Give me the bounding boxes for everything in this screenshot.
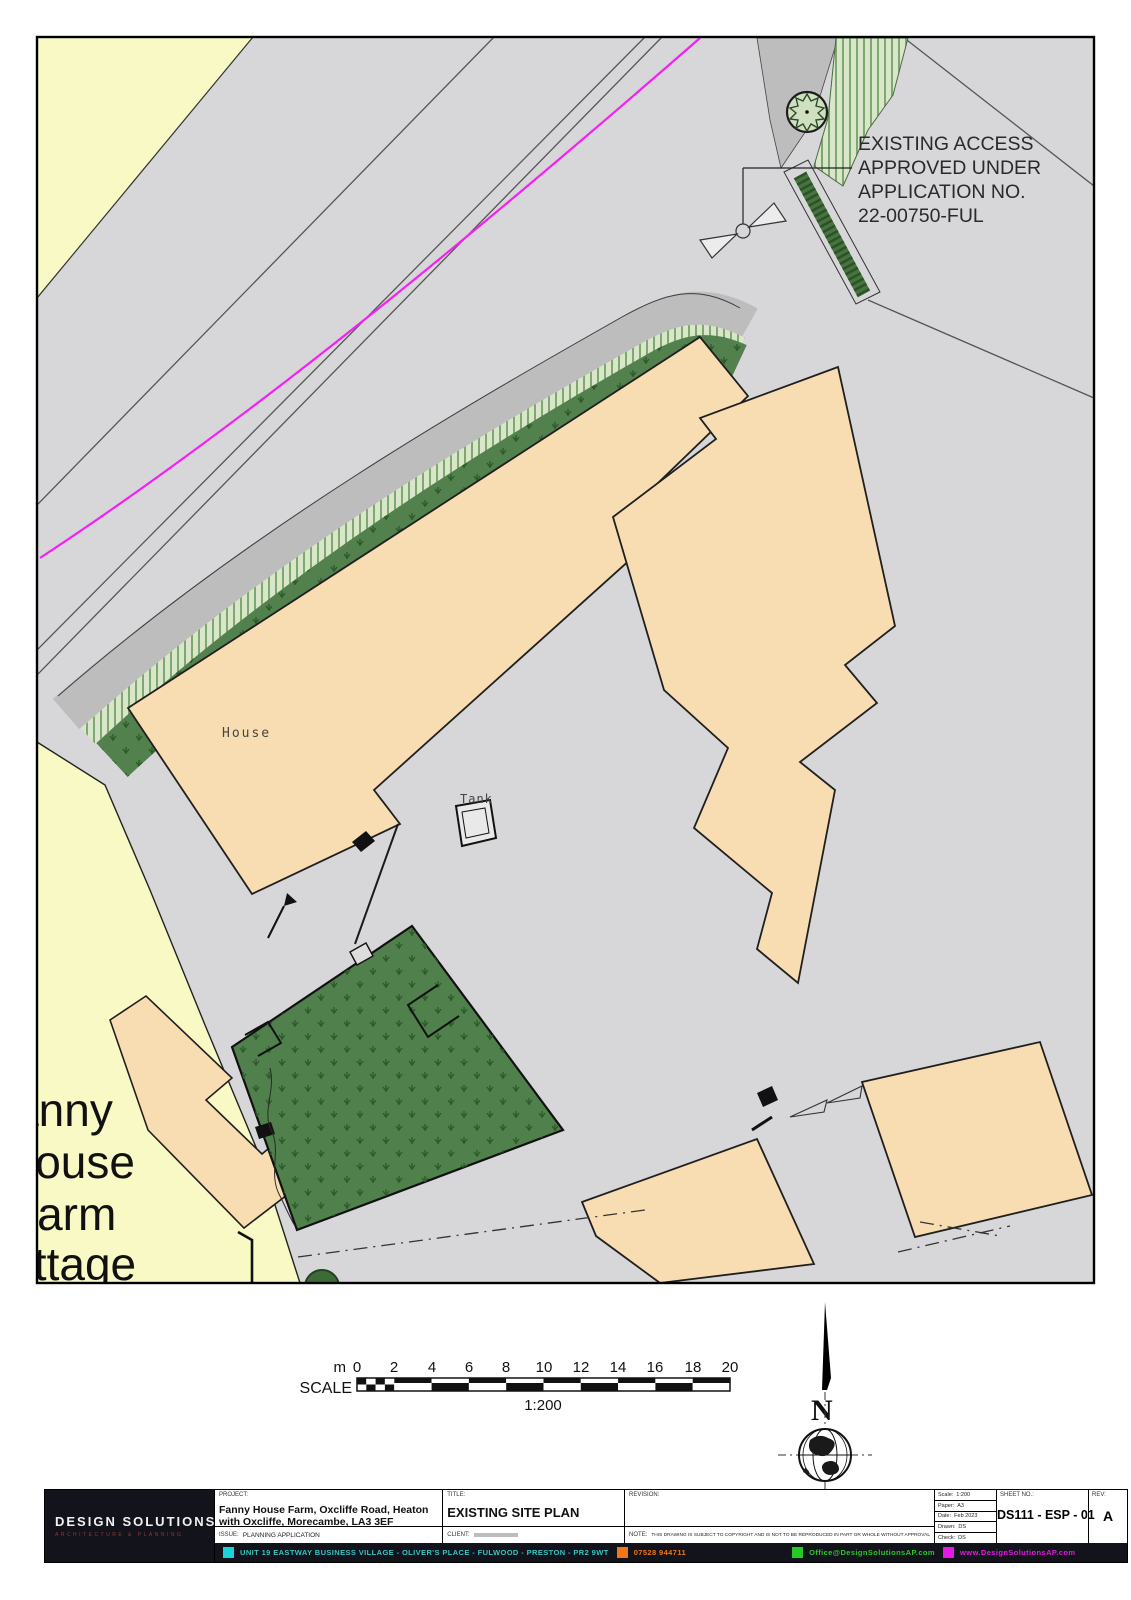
cottage-label-line3: Farm	[9, 1188, 116, 1240]
revision-label: REVISION:	[629, 1492, 930, 1498]
scale-field-label: Scale:	[938, 1492, 953, 1498]
rev-value: A	[1089, 1508, 1127, 1524]
scale-tick-10: 10	[536, 1359, 553, 1376]
tank-label: Tank	[460, 792, 493, 806]
page: EXISTING ACCESS APPROVED UNDER APPLICATI…	[0, 0, 1131, 1600]
house-label: House	[222, 726, 271, 741]
north-arrow-icon: N	[778, 1302, 872, 1494]
north-letter: N	[811, 1394, 833, 1427]
scale-tick-16: 16	[647, 1359, 664, 1376]
note-label: NOTE:	[629, 1532, 647, 1538]
sheet-value: DS111 - ESP - 01	[997, 1508, 1088, 1522]
scale-tick-2: 2	[390, 1359, 398, 1376]
paper-field-label: Paper:	[938, 1503, 954, 1509]
bottom-tree-icon	[305, 1270, 339, 1304]
check-field-value: DS	[958, 1535, 966, 1541]
email-text: Office@DesignSolutionsAP.com	[809, 1548, 935, 1557]
check-field-label: Check:	[938, 1535, 955, 1541]
scale-tick-0: 0	[353, 1359, 361, 1376]
scale-tick-12: 12	[573, 1359, 590, 1376]
magenta-square-icon	[943, 1547, 954, 1558]
rev-label: REV:	[1089, 1490, 1127, 1500]
tree-trunk-dot	[805, 110, 809, 114]
sheet-label: SHEET NO.:	[997, 1490, 1088, 1500]
scale-tick-20: 20	[722, 1359, 739, 1376]
issue-label: ISSUE:	[219, 1532, 239, 1538]
drawing-info-cell: Scale:1:200 Paper:A3 Date:Feb 2023 Drawn…	[935, 1490, 997, 1543]
brand-tagline: ARCHITECTURE & PLANNING	[55, 1532, 216, 1538]
web-text: www.DesignSolutionsAP.com	[960, 1548, 1075, 1557]
address-text: UNIT 19 EASTWAY BUSINESS VILLAGE - OLIVE…	[240, 1548, 609, 1557]
revision-cell: REVISION: NOTE: THIS DRAWING IS SUBJECT …	[625, 1490, 935, 1543]
title-block: DESIGN SOLUTIONS ARCHITECTURE & PLANNING…	[44, 1489, 1128, 1563]
scale-ratio: 1:200	[524, 1397, 562, 1414]
scale-tick-14: 14	[610, 1359, 627, 1376]
sheet-cell: SHEET NO.: DS111 - ESP - 01	[997, 1490, 1089, 1543]
date-field-value: Feb 2023	[954, 1513, 977, 1519]
contact-strip: UNIT 19 EASTWAY BUSINESS VILLAGE - OLIVE…	[215, 1543, 1127, 1562]
cyan-square-icon	[223, 1547, 234, 1558]
project-label: PROJECT:	[219, 1492, 438, 1498]
title-label: TITLE:	[447, 1492, 620, 1498]
project-value: Fanny House Farm, Oxcliffe Road, Heaton …	[219, 1504, 438, 1527]
date-field-label: Date:	[938, 1513, 951, 1519]
cottage-label-line1: Fanny	[0, 1084, 113, 1136]
note-value: THIS DRAWING IS SUBJECT TO COPYRIGHT AND…	[651, 1533, 930, 1538]
green-square-icon	[792, 1547, 803, 1558]
client-label: CLIENT:	[447, 1532, 469, 1538]
annotation-line3: APPLICATION NO.	[858, 181, 1026, 203]
title-value: EXISTING SITE PLAN	[447, 1505, 620, 1520]
title-cell: TITLE: EXISTING SITE PLAN CLIENT:	[443, 1490, 625, 1543]
contact-phone: 07528 944711	[609, 1543, 784, 1562]
scale-tick-6: 6	[465, 1359, 473, 1376]
scale-bar: SCALE m 0 2 4 6 8 10 12 14 16 18 20	[300, 1359, 739, 1414]
scale-bar-ticks: 0 2 4 6 8 10 12 14 16 18 20	[353, 1359, 739, 1376]
annotation-line1: EXISTING ACCESS	[858, 133, 1034, 155]
tank-outline	[456, 800, 496, 846]
scale-tick-18: 18	[685, 1359, 702, 1376]
scale-field-value: 1:200	[956, 1492, 970, 1498]
scale-tick-8: 8	[502, 1359, 510, 1376]
globe-icon	[799, 1429, 851, 1481]
issue-value: PLANNING APPLICATION	[243, 1532, 320, 1539]
client-value-illegible	[474, 1533, 518, 1537]
contact-address: UNIT 19 EASTWAY BUSINESS VILLAGE - OLIVE…	[215, 1543, 609, 1562]
annotation-line2: APPROVED UNDER	[858, 157, 1041, 179]
scale-bar-label: SCALE	[300, 1380, 352, 1397]
rev-cell: REV: A	[1089, 1490, 1127, 1543]
site-plan-drawing: EXISTING ACCESS APPROVED UNDER APPLICATI…	[0, 0, 1131, 1600]
paper-field-value: A3	[957, 1503, 964, 1509]
drawn-field-value: DS	[958, 1524, 966, 1530]
project-cell: PROJECT: Fanny House Farm, Oxcliffe Road…	[215, 1490, 443, 1543]
orange-square-icon	[617, 1547, 628, 1558]
drawn-field-label: Drawn:	[938, 1524, 955, 1530]
brand-name: DESIGN SOLUTIONS	[55, 1514, 216, 1529]
scale-bar-unit: m	[334, 1359, 347, 1376]
scale-tick-4: 4	[428, 1359, 436, 1376]
contact-email: Office@DesignSolutionsAP.com	[784, 1543, 935, 1562]
contact-web: www.DesignSolutionsAP.com	[935, 1543, 1127, 1562]
annotation-line4: 22-00750-FUL	[858, 205, 984, 227]
scale-bar-blocks	[357, 1378, 730, 1391]
cottage-label-line2: House	[2, 1136, 135, 1188]
phone-text: 07528 944711	[634, 1548, 686, 1557]
logo: DESIGN SOLUTIONS ARCHITECTURE & PLANNING	[45, 1490, 215, 1562]
